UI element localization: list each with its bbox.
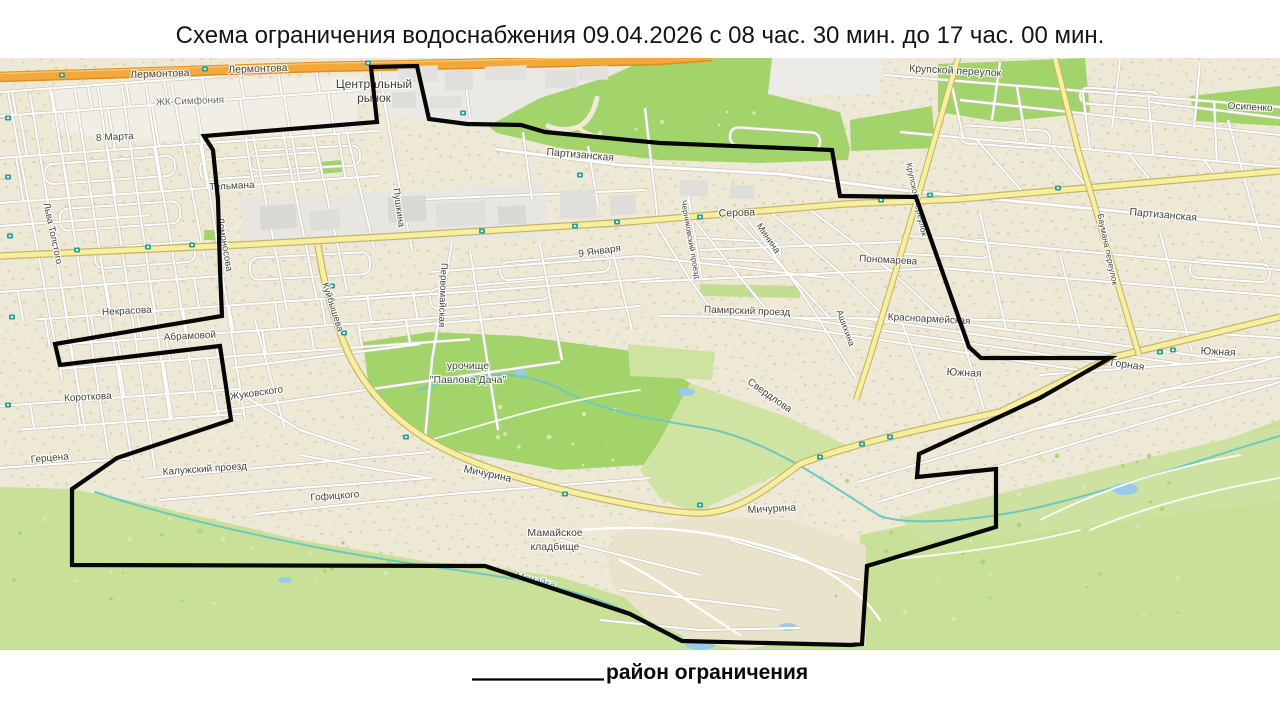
- svg-text:Лермонтова: Лермонтова: [228, 62, 288, 76]
- svg-text:"Павлова Дача": "Павлова Дача": [430, 374, 507, 386]
- svg-text:8 Марта: 8 Марта: [96, 131, 135, 144]
- svg-text:ЖК-Симфония: ЖК-Симфония: [156, 94, 225, 108]
- svg-text:Схема ограничения водоснабжени: Схема ограничения водоснабжения 09.04.20…: [176, 22, 1105, 49]
- svg-text:кладбище: кладбище: [530, 541, 579, 553]
- svg-text:Лермонтова: Лермонтова: [130, 67, 190, 81]
- svg-text:Южная: Южная: [946, 366, 982, 380]
- svg-text:Мичурина: Мичурина: [747, 502, 796, 517]
- svg-text:Серова: Серова: [718, 206, 755, 219]
- svg-text:Южная: Южная: [1200, 345, 1236, 359]
- svg-text:район ограничения: район ограничения: [606, 661, 808, 684]
- svg-text:Первомайская: Первомайская: [436, 263, 449, 328]
- svg-text:урочище: урочище: [447, 360, 489, 372]
- svg-text:Мамайское: Мамайское: [527, 527, 582, 539]
